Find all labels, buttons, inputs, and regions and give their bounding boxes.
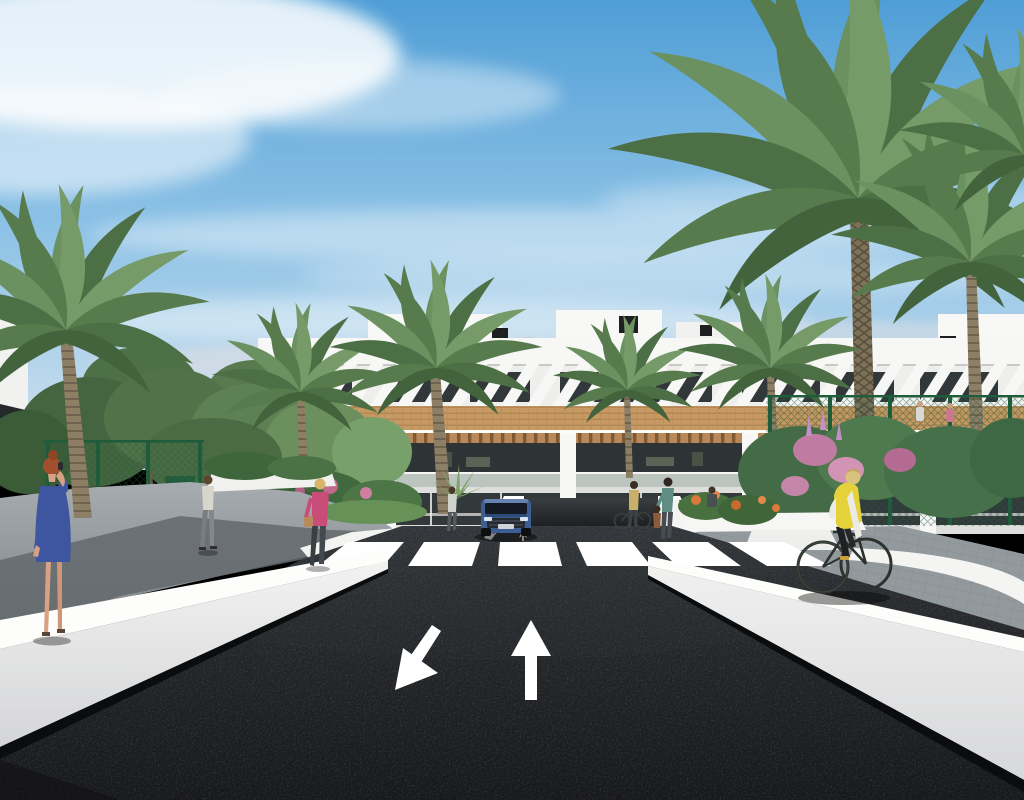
phone [58,462,63,470]
car-suv [475,499,537,542]
render-image [0,0,1024,800]
handbag [304,516,313,527]
